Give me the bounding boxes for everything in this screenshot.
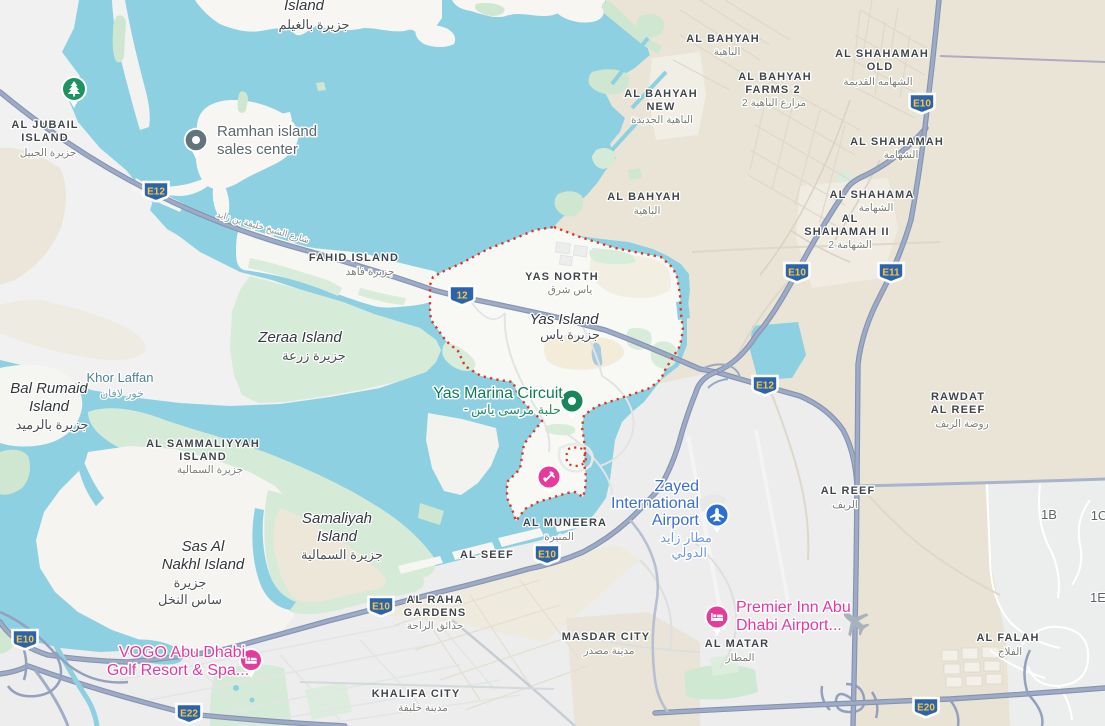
svg-text:E10: E10 — [372, 602, 390, 613]
svg-text:SHAHAMAH II: SHAHAMAH II — [804, 226, 889, 238]
svg-text:المنيرة: المنيرة — [544, 531, 574, 543]
svg-text:جزيرة: جزيرة — [174, 575, 207, 591]
svg-text:1B: 1B — [1041, 507, 1057, 522]
svg-text:YAS NORTH: YAS NORTH — [525, 271, 599, 283]
svg-text:ساس النخل: ساس النخل — [158, 592, 222, 608]
svg-text:VOGO Abu Dhabi: VOGO Abu Dhabi — [119, 644, 245, 661]
svg-text:Yas Island: Yas Island — [530, 311, 600, 328]
svg-text:E12: E12 — [147, 187, 165, 198]
svg-text:Airport: Airport — [652, 512, 700, 529]
svg-text:Island: Island — [284, 0, 325, 14]
svg-text:Dhabi Airport...: Dhabi Airport... — [736, 617, 842, 634]
svg-text:Zeraa Island: Zeraa Island — [257, 329, 342, 346]
svg-text:Yas Marina Circuit: Yas Marina Circuit — [433, 385, 563, 402]
svg-text:AL MATAR: AL MATAR — [705, 638, 769, 650]
svg-text:AL BAHYAH: AL BAHYAH — [607, 191, 680, 203]
svg-text:Nakhl Island: Nakhl Island — [162, 556, 245, 573]
svg-text:E11: E11 — [882, 268, 900, 279]
svg-text:Golf Resort & Spa...: Golf Resort & Spa... — [107, 662, 249, 679]
svg-text:الفلاح: الفلاح — [998, 646, 1023, 658]
svg-text:RAWDAT: RAWDAT — [931, 391, 985, 403]
svg-text:E10: E10 — [913, 99, 931, 110]
svg-text:المطار: المطار — [724, 652, 754, 664]
svg-text:جزيرة ياس: جزيرة ياس — [540, 327, 600, 343]
svg-text:خور لافان: خور لافان — [100, 388, 144, 400]
svg-text:Island: Island — [317, 528, 358, 545]
svg-text:NEW: NEW — [647, 101, 676, 113]
svg-text:AL BAHYAH: AL BAHYAH — [624, 88, 697, 100]
svg-text:الباهية: الباهية — [634, 205, 661, 217]
svg-text:FAHID ISLAND: FAHID ISLAND — [309, 252, 399, 264]
svg-text:Ramhan island: Ramhan island — [217, 123, 317, 140]
svg-text:KHALIFA CITY: KHALIFA CITY — [372, 688, 461, 700]
svg-text:الشهامه القديمة: الشهامه القديمة — [843, 76, 912, 88]
svg-text:الباهية: الباهية — [714, 46, 741, 58]
svg-text:Sas Al: Sas Al — [182, 538, 225, 555]
svg-text:حلبة مرسى ياس: حلبة مرسى ياس — [471, 402, 561, 418]
svg-text:Premier Inn Abu: Premier Inn Abu — [736, 599, 851, 616]
svg-text:ياس شرق: ياس شرق — [548, 284, 593, 296]
svg-text:1C: 1C — [1091, 508, 1105, 523]
svg-text:AL FALAH: AL FALAH — [977, 632, 1040, 644]
svg-text:OLD: OLD — [867, 61, 894, 73]
svg-text:Khor Laffan: Khor Laffan — [87, 370, 154, 385]
svg-text:جزيرة السمالية: جزيرة السمالية — [301, 547, 383, 563]
svg-text:AL BAHYAH: AL BAHYAH — [738, 71, 811, 83]
svg-text:sales center: sales center — [217, 141, 298, 158]
svg-text:جزيرة الجبيل: جزيرة الجبيل — [20, 147, 77, 159]
svg-text:Samaliyah: Samaliyah — [302, 510, 372, 527]
svg-text:AL BAHYAH: AL BAHYAH — [686, 33, 759, 45]
svg-text:الباهية الجديدة: الباهية الجديدة — [631, 114, 693, 126]
svg-text:ISLAND: ISLAND — [179, 451, 227, 463]
svg-text:MASDAR CITY: MASDAR CITY — [562, 631, 651, 643]
svg-text:الشهامة: الشهامة — [884, 149, 919, 161]
svg-text:E20: E20 — [917, 703, 935, 714]
svg-text:AL SHAHAMA: AL SHAHAMA — [830, 189, 915, 201]
svg-text:1E: 1E — [1090, 590, 1105, 605]
svg-text:Island: Island — [29, 398, 70, 415]
svg-text:ISLAND: ISLAND — [21, 132, 69, 144]
svg-text:مزارع الباهية 2: مزارع الباهية 2 — [742, 97, 807, 109]
svg-text:AL SHAHAMAH: AL SHAHAMAH — [835, 48, 929, 60]
svg-text:Bal Rumaid: Bal Rumaid — [10, 380, 88, 397]
svg-text:E10: E10 — [538, 550, 556, 561]
svg-text:E22: E22 — [180, 709, 198, 720]
svg-text:12: 12 — [456, 291, 468, 302]
svg-text:جزيرة فاهد: جزيرة فاهد — [346, 266, 395, 278]
svg-text:جزيرة زرعة: جزيرة زرعة — [282, 348, 346, 364]
svg-text:AL SEEF: AL SEEF — [460, 549, 514, 561]
svg-text:GARDENS: GARDENS — [404, 607, 467, 619]
svg-text:الريف: الريف — [832, 499, 858, 511]
svg-text:جزيرة بالرميد: جزيرة بالرميد — [16, 417, 89, 433]
svg-text:E12: E12 — [756, 381, 774, 392]
svg-text:AL JUBAIL: AL JUBAIL — [11, 119, 78, 131]
svg-text:مدينة مصدر: مدينة مصدر — [582, 645, 634, 657]
svg-text:FARMS 2: FARMS 2 — [745, 84, 800, 96]
svg-text:AL: AL — [842, 213, 859, 225]
svg-text:AL RAHA: AL RAHA — [407, 594, 464, 606]
svg-text:International: International — [611, 495, 699, 512]
svg-text:مطار زايد: مطار زايد — [660, 530, 712, 546]
svg-text:E10: E10 — [788, 268, 806, 279]
svg-text:جزيرة السمالية: جزيرة السمالية — [177, 464, 243, 476]
svg-text:AL REEF: AL REEF — [931, 404, 986, 416]
svg-text:حدائق الراحة: حدائق الراحة — [407, 620, 463, 632]
svg-text:AL REEF: AL REEF — [821, 485, 876, 497]
svg-text:Zayed: Zayed — [655, 478, 699, 495]
svg-text:روضة الريف: روضة الريف — [935, 418, 988, 430]
svg-text:AL SHAHAMAH: AL SHAHAMAH — [850, 136, 944, 148]
svg-text:جزيرة بالغيلم: جزيرة بالغيلم — [278, 17, 349, 33]
svg-text:-: - — [464, 401, 468, 416]
svg-text:AL SAMMALIYYAH: AL SAMMALIYYAH — [146, 438, 260, 450]
svg-text:E10: E10 — [16, 635, 34, 646]
svg-text:الشهامة 2: الشهامة 2 — [828, 239, 872, 251]
svg-text:AL MUNEERA: AL MUNEERA — [523, 517, 607, 529]
svg-text:الدولي: الدولي — [672, 545, 707, 561]
svg-text:مدينة خليفة: مدينة خليفة — [398, 702, 448, 714]
svg-text:الشهامة: الشهامة — [859, 202, 894, 214]
